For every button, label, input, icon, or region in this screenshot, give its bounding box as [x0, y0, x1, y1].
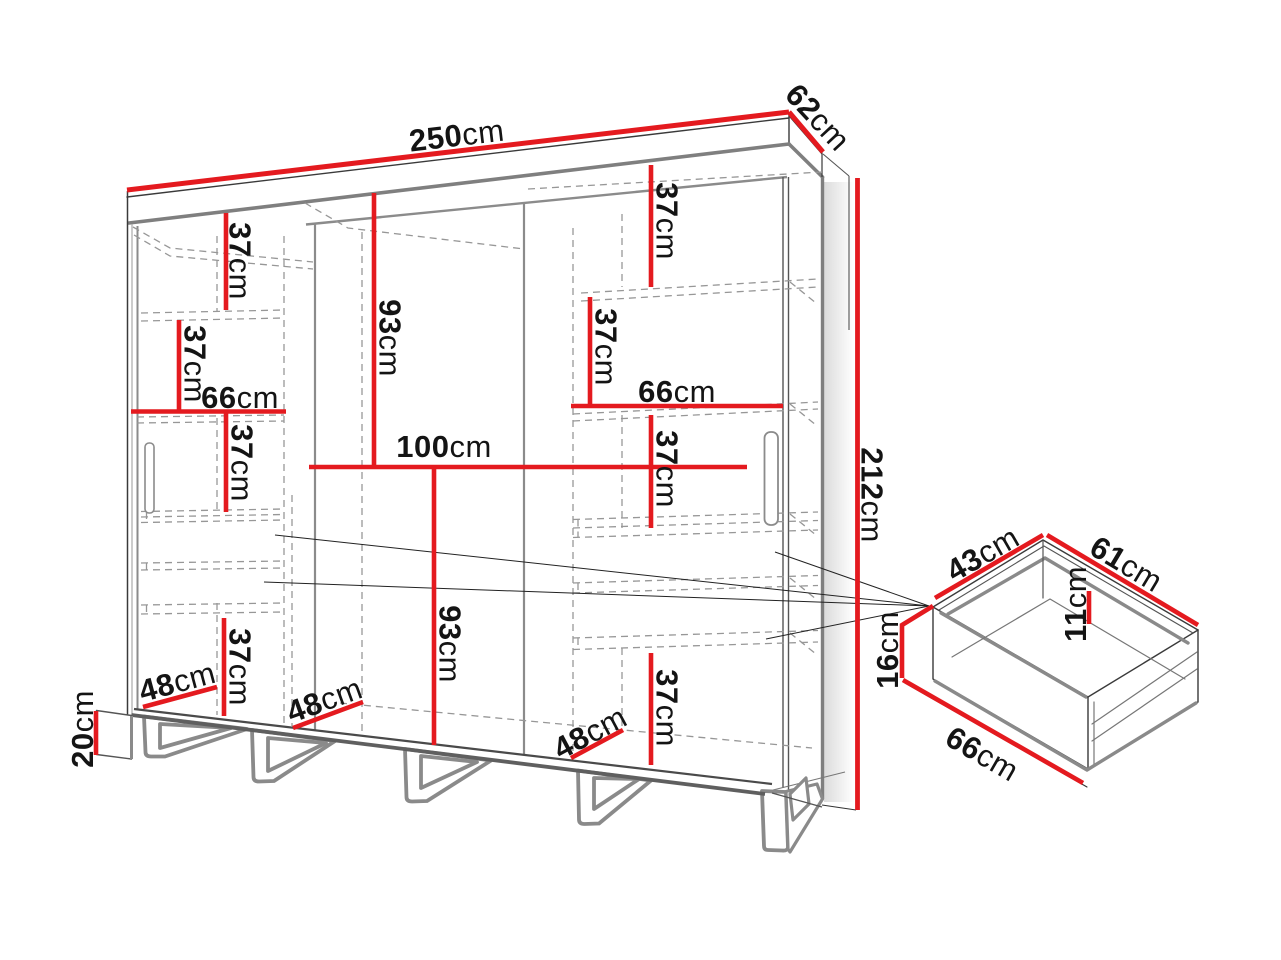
svg-text:37cm: 37cm: [650, 182, 685, 260]
svg-text:20cm: 20cm: [65, 690, 100, 768]
svg-text:37cm: 37cm: [225, 424, 260, 502]
svg-text:37cm: 37cm: [223, 222, 258, 300]
svg-text:16cm: 16cm: [870, 611, 905, 689]
svg-text:37cm: 37cm: [650, 430, 685, 508]
svg-text:212cm: 212cm: [855, 447, 890, 543]
svg-text:66cm: 66cm: [638, 374, 716, 409]
svg-text:37cm: 37cm: [650, 669, 685, 747]
svg-text:11cm: 11cm: [1058, 566, 1093, 642]
svg-text:37cm: 37cm: [223, 628, 258, 706]
svg-text:93cm: 93cm: [373, 299, 408, 377]
svg-text:37cm: 37cm: [589, 308, 624, 386]
svg-text:66cm: 66cm: [201, 380, 279, 415]
svg-text:93cm: 93cm: [433, 605, 468, 683]
svg-text:100cm: 100cm: [396, 429, 492, 464]
